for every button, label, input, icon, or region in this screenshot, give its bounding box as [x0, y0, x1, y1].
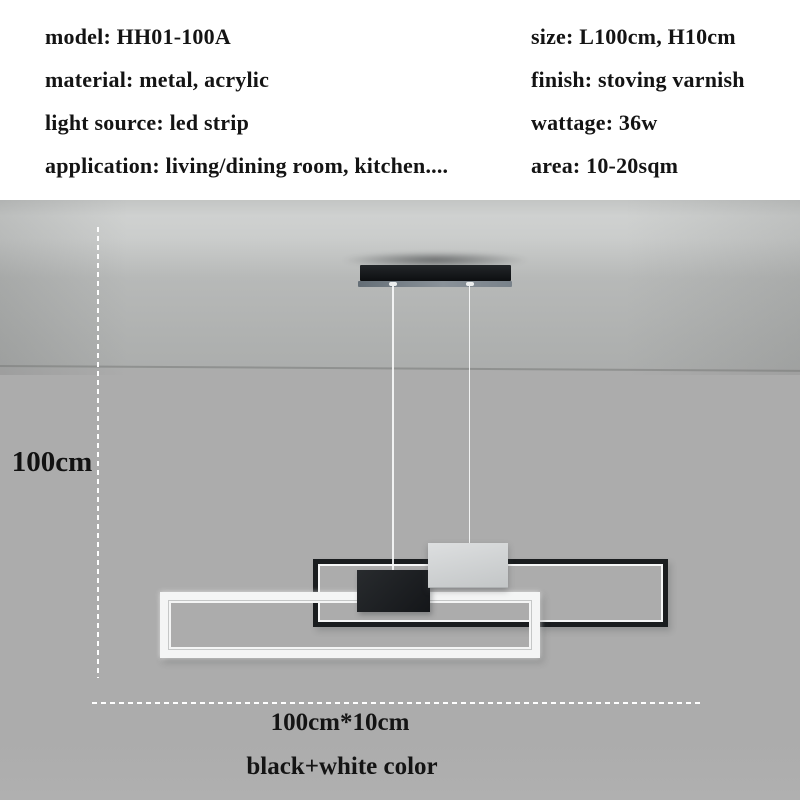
ceiling-vignette: [0, 200, 800, 375]
ceiling-canopy-plate: [358, 281, 512, 287]
color-variant-label: black+white color: [0, 753, 684, 781]
product-photo: 100cm 100cm*10cm black+white color: [0, 200, 800, 800]
spec-wattage: wattage: 36w: [531, 110, 657, 136]
spec-application: application: living/dining room, kitchen…: [45, 153, 448, 179]
width-dimension-dashed-line: [92, 702, 703, 704]
height-dimension-label: 100cm: [10, 446, 94, 479]
white-frame-inner-edge: [168, 600, 532, 650]
spec-finish: finish: stoving varnish: [531, 67, 745, 93]
spec-area: area: 10-20sqm: [531, 153, 678, 179]
spec-light-source: light source: led strip: [45, 110, 249, 136]
product-spec-image: model: HH01-100A material: metal, acryli…: [0, 0, 800, 800]
height-dimension-dashed-line: [97, 227, 99, 678]
suspension-wire-left: [392, 286, 394, 571]
size-dimension-label: 100cm*10cm: [0, 709, 680, 737]
spec-material: material: metal, acrylic: [45, 67, 269, 93]
white-rectangle-frame: [160, 592, 540, 658]
white-driver-box: [428, 543, 508, 588]
wire-connector-right: [466, 282, 474, 286]
black-driver-box: [357, 570, 430, 612]
spec-size: size: L100cm, H10cm: [531, 24, 736, 50]
suspension-wire-right: [469, 286, 471, 544]
spec-model: model: HH01-100A: [45, 24, 231, 50]
ceiling-canopy-bar: [360, 265, 511, 281]
